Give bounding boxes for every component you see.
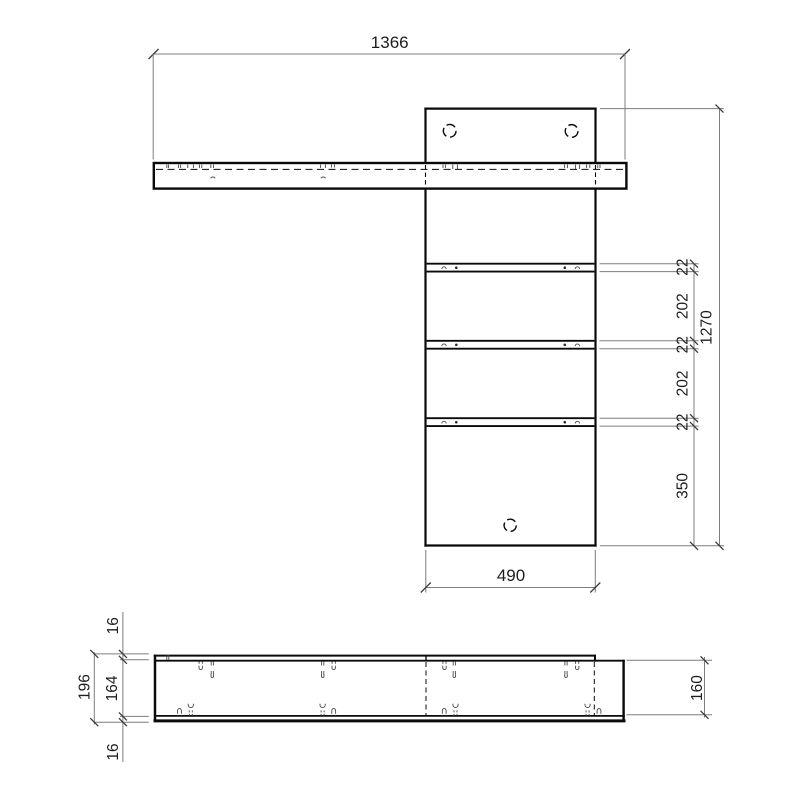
svg-text:202: 202 <box>675 293 692 319</box>
svg-text:160: 160 <box>689 675 706 701</box>
svg-text:16: 16 <box>105 617 122 634</box>
svg-text:22: 22 <box>675 258 692 275</box>
svg-text:490: 490 <box>497 566 525 585</box>
svg-text:22: 22 <box>675 413 692 430</box>
svg-text:16: 16 <box>105 743 122 760</box>
svg-text:1366: 1366 <box>371 33 409 52</box>
svg-text:1270: 1270 <box>699 310 716 345</box>
svg-text:196: 196 <box>76 674 93 700</box>
svg-text:202: 202 <box>675 370 692 396</box>
svg-text:22: 22 <box>675 336 692 353</box>
svg-text:164: 164 <box>104 675 121 701</box>
svg-text:350: 350 <box>675 473 692 499</box>
